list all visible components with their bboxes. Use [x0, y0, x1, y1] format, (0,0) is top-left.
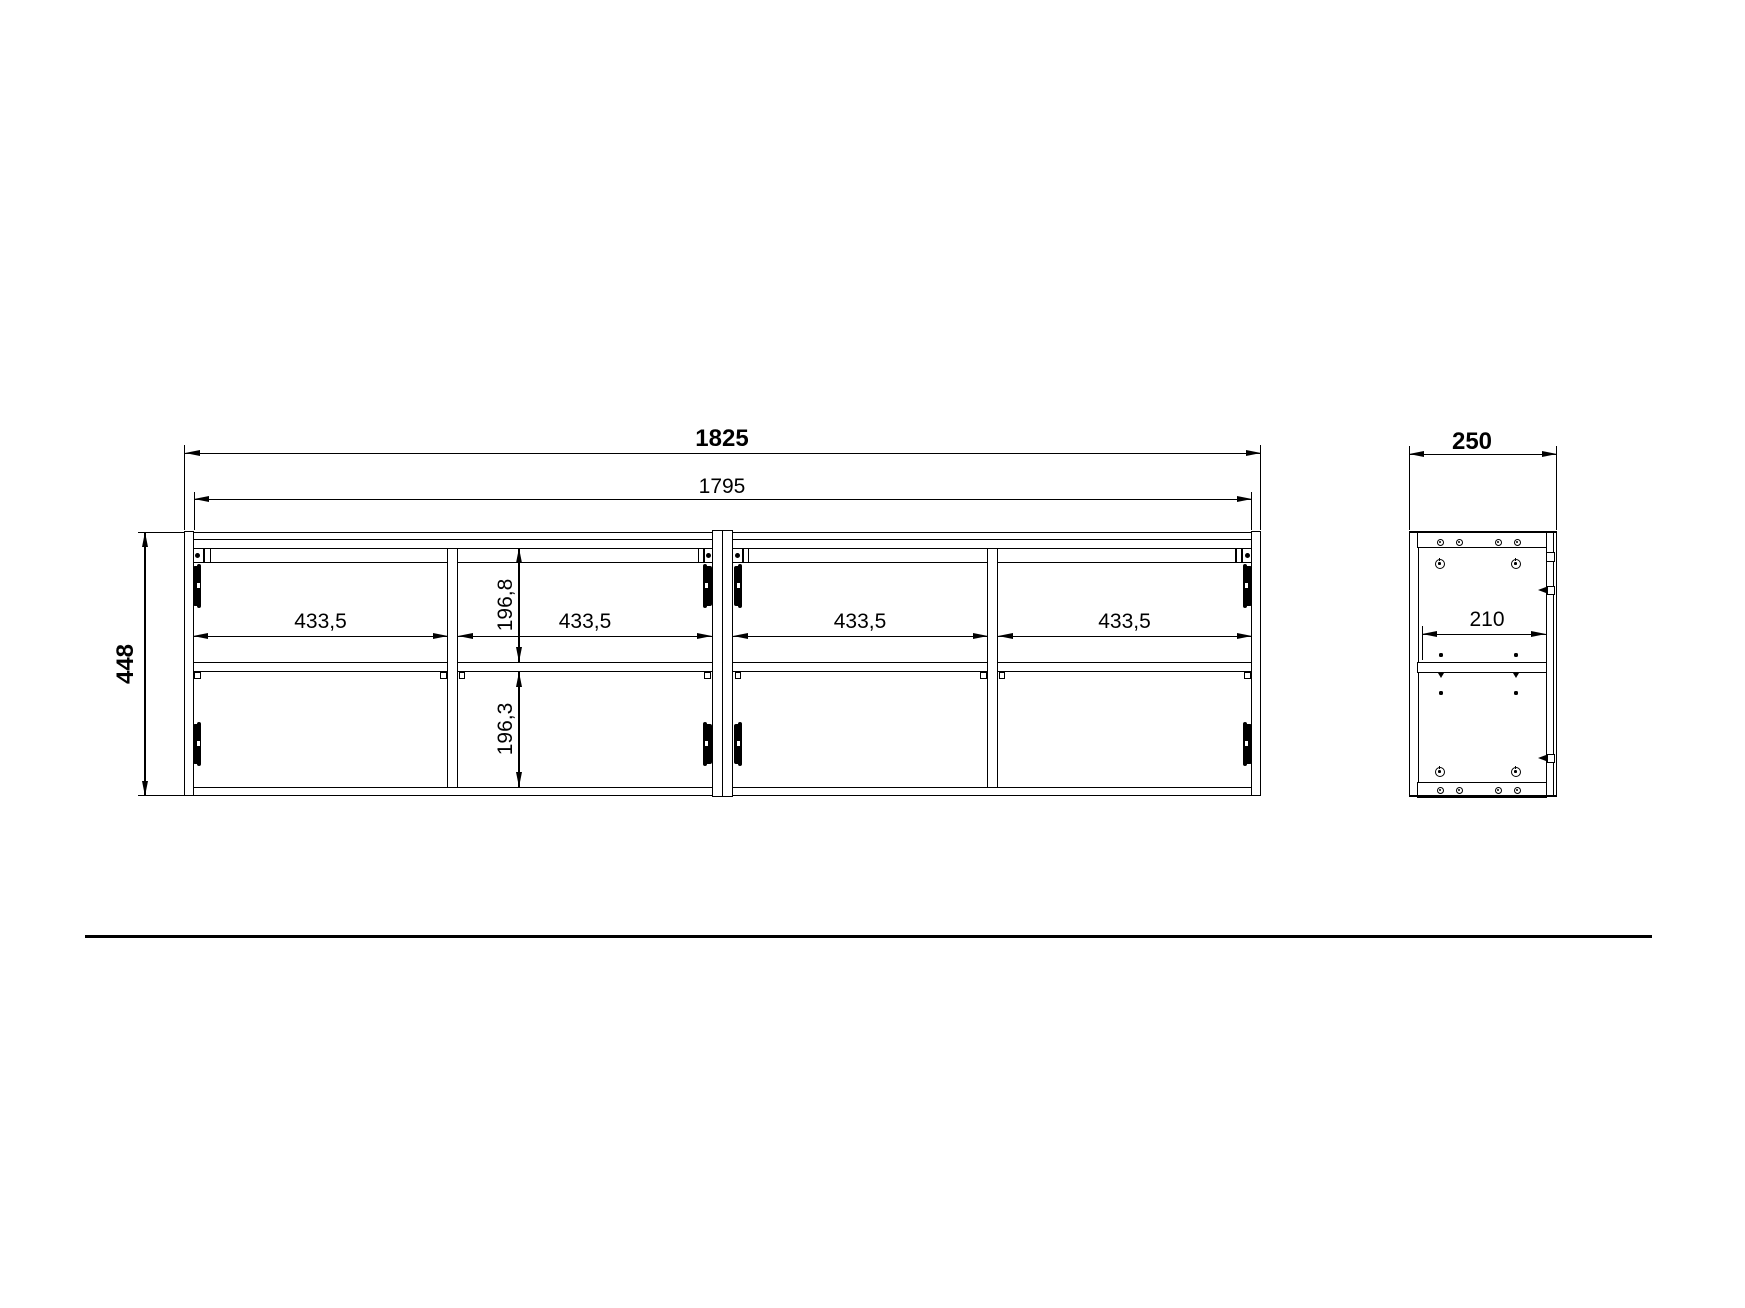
- extension-line: [1260, 445, 1261, 530]
- hanging-rail-line: [733, 562, 987, 564]
- extension-line: [194, 492, 195, 530]
- screw-hole-icon: [1514, 787, 1521, 794]
- arrowhead: [1246, 450, 1261, 456]
- hanging-rail-line: [998, 562, 1252, 564]
- shelf-pin: [1513, 673, 1519, 678]
- dim-compartment-width-3: 433,5: [780, 611, 940, 633]
- rail-tick: [1235, 548, 1237, 564]
- cam-lock-icon: [1511, 767, 1521, 777]
- dim-line-upper-height: [518, 548, 519, 662]
- center-divider-right: [722, 530, 733, 797]
- rail-tick: [698, 548, 700, 564]
- pin-hole: [1439, 691, 1442, 694]
- shelf-pin: [980, 672, 987, 679]
- dim-line-compartment: [193, 636, 448, 637]
- screw-hole-icon: [1495, 787, 1502, 794]
- arrowhead: [142, 781, 148, 796]
- dim-compartment-width-4: 433,5: [1045, 611, 1205, 633]
- screw-hole-icon: [1437, 787, 1444, 794]
- rail-screw: [706, 553, 711, 558]
- shelf-pin: [735, 672, 742, 679]
- extension-line: [1556, 446, 1557, 530]
- wall-bracket: [1547, 754, 1555, 764]
- cam-lock-icon: [1511, 559, 1521, 569]
- ground-line: [85, 935, 1652, 938]
- side-bottom-edge: [1409, 795, 1558, 797]
- arrowhead: [185, 450, 200, 456]
- extension-line: [1251, 492, 1252, 530]
- side-top-edge: [1409, 531, 1558, 533]
- dim-overall-width: 1825: [642, 426, 802, 452]
- hinge-icon: [705, 566, 712, 606]
- arrowhead: [433, 633, 448, 639]
- shelf-pin: [1438, 673, 1444, 678]
- hanging-rail-line: [193, 562, 447, 564]
- screw-hole-icon: [1456, 539, 1463, 546]
- intermediate-divider: [447, 548, 458, 788]
- dim-lower-compartment-height: 196,3: [495, 649, 517, 809]
- dim-line-height: [144, 532, 145, 796]
- arrowhead: [458, 633, 473, 639]
- hinge-icon: [1245, 724, 1252, 764]
- shelf-pin: [194, 672, 201, 679]
- rail-tick: [1241, 548, 1243, 564]
- dim-compartment-width-1: 433,5: [241, 611, 401, 633]
- technical-drawing-sheet: 1825 1795 448 433,5 433,5 433,5 433,5 19…: [0, 0, 1745, 1308]
- shelf-pin: [704, 672, 711, 679]
- arrowhead: [697, 633, 712, 639]
- side-back-outer-edge: [1556, 531, 1558, 797]
- shelf-pin: [1244, 672, 1251, 679]
- hinge-icon: [734, 566, 741, 606]
- rail-tick: [203, 548, 205, 564]
- hanging-rail-line: [193, 548, 447, 550]
- screw-hole-icon: [1437, 539, 1444, 546]
- dim-inner-width: 1795: [642, 476, 802, 498]
- dim-line-inner-depth: [1422, 634, 1546, 635]
- screw-hole-icon: [1495, 539, 1502, 546]
- rail-screw: [195, 553, 200, 558]
- extension-line: [138, 532, 184, 533]
- arrowhead: [733, 633, 748, 639]
- wall-bracket: [1546, 552, 1555, 563]
- rail-tick: [742, 548, 744, 564]
- cam-lock-icon: [1435, 559, 1445, 569]
- arrowhead: [1531, 631, 1546, 637]
- dim-line-lower-height: [518, 672, 519, 787]
- hinge-icon: [193, 724, 200, 764]
- dim-line-compartment: [998, 636, 1252, 637]
- rail-tick: [703, 548, 705, 564]
- cam-lock-icon: [1435, 767, 1445, 777]
- dim-depth: 250: [1392, 429, 1552, 455]
- hinge-icon: [193, 566, 200, 606]
- screw-hole-icon: [1514, 539, 1521, 546]
- rail-tick: [748, 548, 750, 564]
- right-side-panel: [1251, 531, 1261, 796]
- arrowhead: [998, 633, 1013, 639]
- dim-line-compartment: [733, 636, 988, 637]
- screw-hole-icon: [1456, 787, 1463, 794]
- rail-screw: [735, 553, 740, 558]
- hinge-icon: [705, 724, 712, 764]
- intermediate-divider: [987, 548, 998, 788]
- extension-line: [184, 445, 185, 530]
- wall-bracket: [1547, 586, 1555, 596]
- pin-hole: [1514, 691, 1517, 694]
- hanging-rail-line: [998, 548, 1252, 550]
- dim-line-overall-width: [185, 453, 1261, 454]
- hinge-icon: [1245, 566, 1252, 606]
- dim-compartment-width-2: 433,5: [505, 611, 665, 633]
- arrowhead: [1237, 633, 1252, 639]
- hanging-rail-line: [733, 548, 987, 550]
- arrowhead: [1237, 496, 1252, 502]
- dim-line-inner-width: [194, 499, 1252, 500]
- extension-line: [1422, 626, 1423, 660]
- hinge-icon: [734, 724, 741, 764]
- dim-inner-depth: 210: [1407, 609, 1567, 631]
- pin-hole: [1439, 653, 1442, 656]
- rail-tick: [210, 548, 212, 564]
- bracket-hook: [1538, 587, 1546, 593]
- center-divider-left: [712, 530, 723, 797]
- bracket-hook: [1538, 755, 1546, 761]
- extension-line: [138, 795, 184, 796]
- shelf-pin: [440, 672, 447, 679]
- side-top-panel: [1417, 532, 1547, 548]
- arrowhead: [194, 496, 209, 502]
- arrowhead: [142, 532, 148, 547]
- extension-line: [1409, 446, 1410, 530]
- arrowhead: [193, 633, 208, 639]
- side-shelf: [1417, 662, 1547, 673]
- pin-hole: [1514, 653, 1517, 656]
- shelf-pin: [999, 672, 1006, 679]
- rail-screw: [1245, 553, 1250, 558]
- arrowhead: [1422, 631, 1437, 637]
- dim-height: 448: [113, 584, 139, 744]
- shelf-pin: [459, 672, 466, 679]
- arrowhead: [973, 633, 988, 639]
